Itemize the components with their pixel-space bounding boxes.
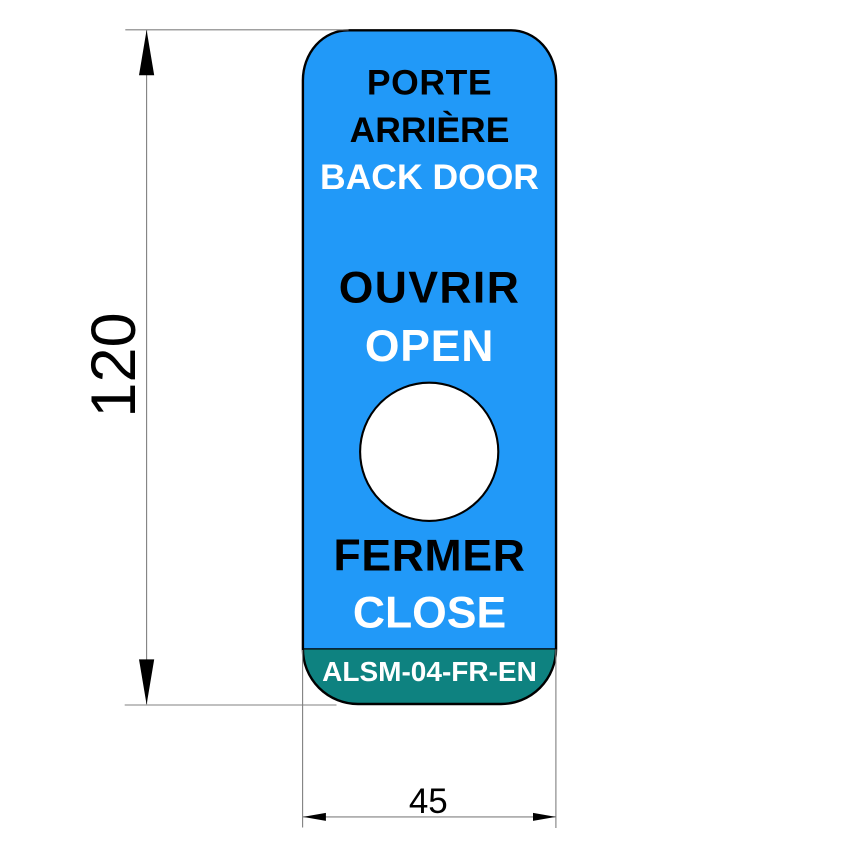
svg-text:120: 120 bbox=[79, 312, 149, 417]
svg-text:OUVRIR: OUVRIR bbox=[339, 264, 520, 313]
svg-text:ARRIÈRE: ARRIÈRE bbox=[350, 110, 510, 150]
svg-text:45: 45 bbox=[409, 782, 448, 821]
svg-text:OPEN: OPEN bbox=[365, 322, 494, 371]
svg-text:CLOSE: CLOSE bbox=[353, 589, 506, 638]
svg-text:ALSM-04-FR-EN: ALSM-04-FR-EN bbox=[322, 656, 537, 687]
svg-text:PORTE: PORTE bbox=[367, 63, 492, 103]
svg-text:BACK DOOR: BACK DOOR bbox=[320, 157, 539, 197]
svg-text:FERMER: FERMER bbox=[333, 531, 525, 580]
